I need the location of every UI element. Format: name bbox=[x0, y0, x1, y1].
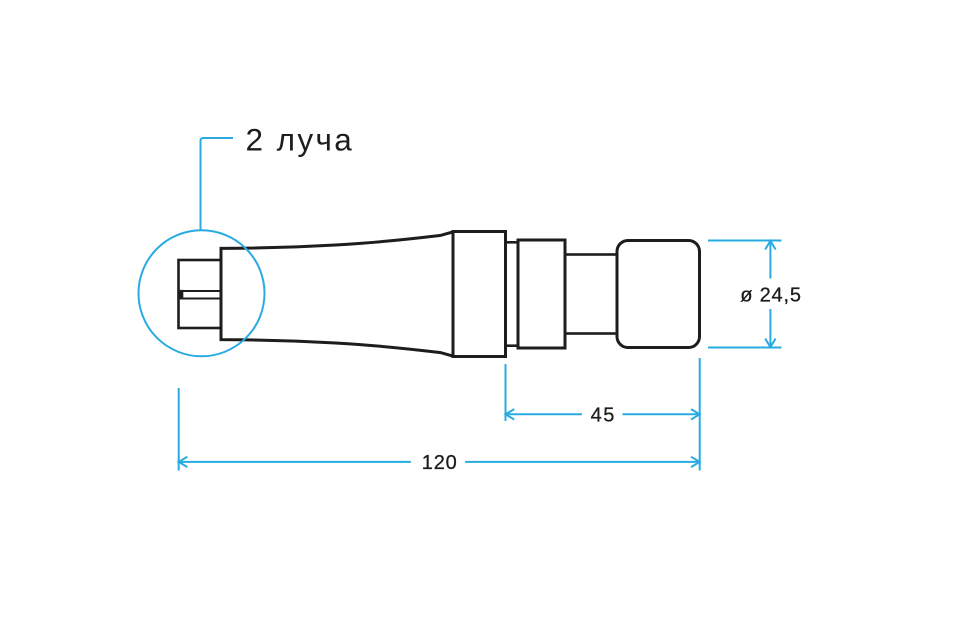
svg-text:120: 120 bbox=[422, 452, 458, 474]
svg-text:45: 45 bbox=[591, 405, 616, 427]
svg-text:2 луча: 2 луча bbox=[246, 122, 355, 158]
svg-text:ø 24,5: ø 24,5 bbox=[740, 284, 802, 306]
